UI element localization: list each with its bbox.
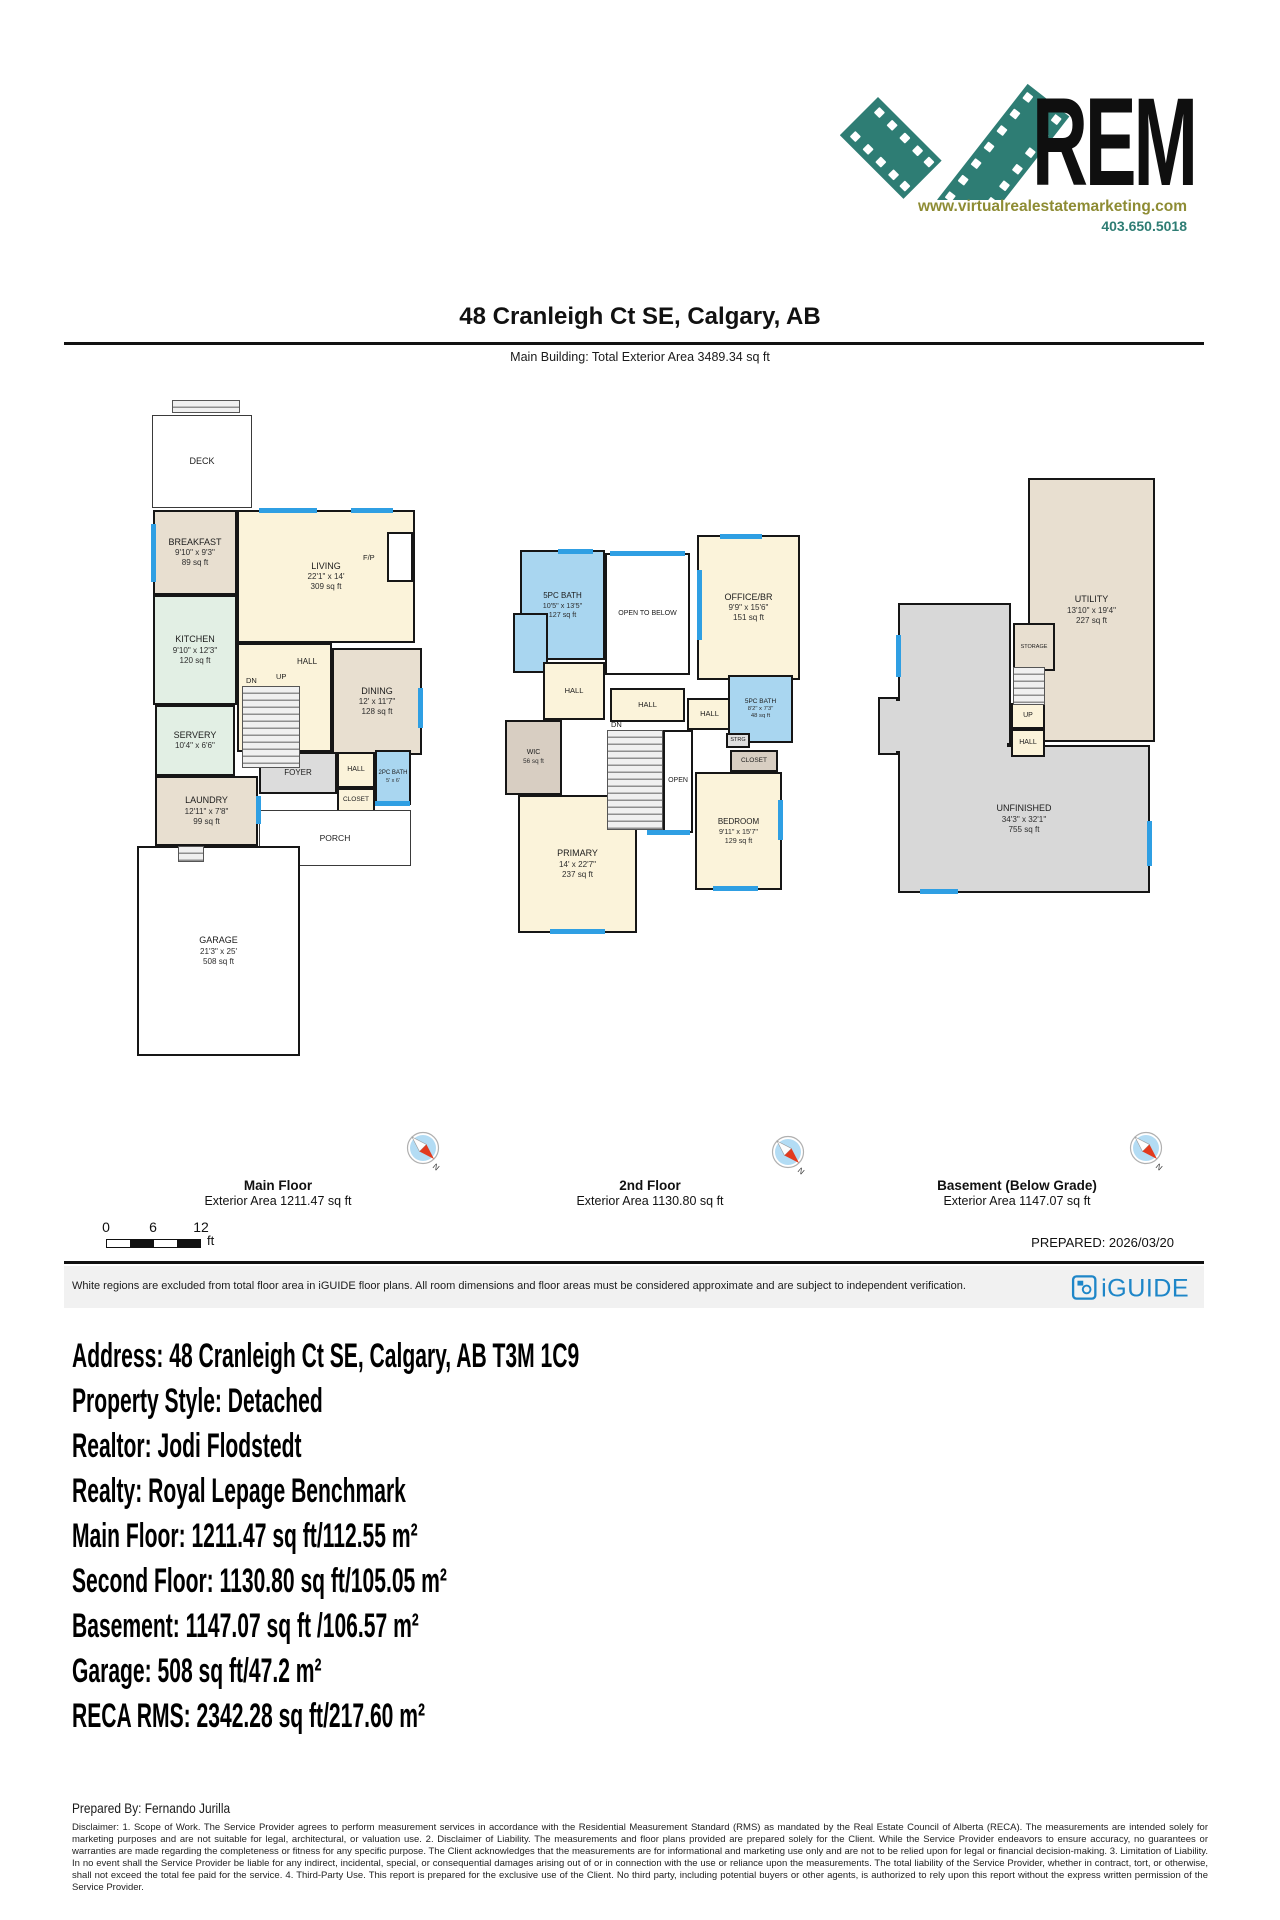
detail-line: Realtor: Jodi Flodstedt: [72, 1424, 579, 1469]
room-area: [898, 603, 1011, 745]
prepared-date: PREPARED: 2026/03/20: [0, 1235, 1174, 1250]
page-subtitle: Main Building: Total Exterior Area 3489.…: [0, 350, 1280, 364]
room-deck: DECK: [152, 415, 252, 508]
detail-line: Main Floor: 1211.47 sq ft/112.55 m²: [72, 1514, 579, 1559]
room-label: HALL: [297, 657, 317, 667]
room-label: UTILITY13'10" x 19'4"227 sq ft: [1067, 594, 1116, 625]
brand-phone: 403.650.5018: [1101, 218, 1187, 234]
page-title: 48 Cranleigh Ct SE, Calgary, AB: [0, 303, 1280, 331]
room-mark-f-p: F/P: [363, 553, 375, 562]
room-breakfast: BREAKFAST9'10" x 9'3"89 sq ft: [153, 510, 237, 595]
room-label: OPEN: [668, 777, 688, 786]
floor-name: Basement (Below Grade): [867, 1178, 1167, 1193]
prepared-by: Prepared By: Fernando Jurilla: [72, 1800, 230, 1816]
room-2pc-bath: 2PC BATH5' x 6': [375, 750, 411, 805]
brand-wordmark: REM: [1032, 73, 1195, 200]
property-details: Address: 48 Cranleigh Ct SE, Calgary, AB…: [72, 1334, 890, 1739]
legal-disclaimer: Disclaimer: 1. Scope of Work. The Servic…: [72, 1822, 1208, 1894]
title-divider: [64, 342, 1204, 345]
detail-line: Property Style: Detached: [72, 1379, 579, 1424]
brand-header: REM www.virtualrealestatemarketing.com 4…: [840, 60, 1205, 295]
window-marker: [1147, 821, 1152, 866]
room-label: OFFICE/BR9'9" x 15'6"151 sq ft: [724, 592, 772, 623]
window-marker: [610, 551, 685, 556]
room-label: DECK: [189, 456, 214, 467]
room-kitchen: KITCHEN9'10" x 12'3"120 sq ft: [153, 595, 237, 705]
room-label: 5PC BATH10'5" x 13'5"127 sq ft: [543, 591, 582, 619]
room-closet: CLOSET: [337, 788, 375, 812]
disclaimer-bar: White regions are excluded from total fl…: [64, 1266, 1204, 1308]
window-marker: [151, 524, 156, 582]
floor-area: Exterior Area 1130.80 sq ft: [500, 1194, 800, 1208]
room-label: STORAGE: [1021, 644, 1048, 651]
window-marker: [375, 801, 410, 806]
stairs: [178, 846, 204, 862]
room-label: FOYER: [284, 768, 312, 778]
room-hall: HALL: [543, 662, 605, 720]
room-label: BEDROOM9'11" x 15'7"129 sq ft: [718, 817, 759, 845]
stairs: [242, 686, 300, 768]
room-hall: HALL: [1011, 729, 1045, 757]
room-label: HALL: [700, 709, 719, 718]
main-floor-label: Main Floor Exterior Area 1211.47 sq ft: [128, 1178, 428, 1208]
window-marker: [256, 796, 261, 824]
room-up: UP: [1011, 703, 1045, 729]
window-marker: [720, 534, 762, 539]
room-area: [387, 532, 413, 582]
room-label: LIVING22'1" x 14'309 sq ft: [307, 561, 344, 592]
detail-line: RECA RMS: 2342.28 sq ft/217.60 m²: [72, 1694, 579, 1739]
brand-website: www.virtualrealestatemarketing.com: [918, 198, 1187, 216]
room-label: LAUNDRY12'11" x 7'8"99 sq ft: [185, 795, 229, 826]
room-hall: HALL: [687, 698, 732, 730]
room-label: CLOSET: [741, 757, 767, 765]
window-marker: [259, 508, 317, 513]
window-marker: [647, 830, 690, 835]
main-floor-plan: DECKBREAKFAST9'10" x 9'3"89 sq ftLIVING2…: [135, 398, 420, 1063]
wall-opening: [901, 741, 1007, 749]
room-label: 2PC BATH5' x 6': [379, 770, 408, 784]
room-closet: CLOSET: [730, 750, 778, 772]
window-marker: [896, 635, 901, 677]
stairs: [607, 730, 663, 830]
window-marker: [558, 549, 593, 554]
detail-line: Second Floor: 1130.80 sq ft/105.05 m²: [72, 1559, 579, 1604]
room-wic: WIC56 sq ft: [505, 720, 562, 795]
room-open-to-below: OPEN TO BELOW: [605, 553, 690, 675]
room-label: STRG: [730, 737, 745, 744]
room-label: HALL: [638, 700, 657, 709]
room-label: SERVERY10'4" x 6'6": [174, 730, 217, 751]
iguide-wordmark: iGUIDE: [1101, 1275, 1189, 1302]
room-label: 5PC BATH8'2" x 7'3"48 sq ft: [745, 698, 776, 721]
vrem-logo: REM: [840, 60, 1205, 200]
room-unfinished: UNFINISHED34'3" x 32'1"755 sq ft: [898, 745, 1150, 893]
detail-line: Garage: 508 sq ft/47.2 m²: [72, 1649, 579, 1694]
compass-icon: N: [766, 1132, 810, 1176]
window-marker: [418, 688, 423, 728]
floor-name: 2nd Floor: [500, 1178, 800, 1193]
window-marker: [920, 889, 958, 894]
svg-text:N: N: [1154, 1162, 1164, 1172]
window-marker: [713, 886, 758, 891]
scale-tick: 6: [149, 1219, 157, 1235]
detail-line: Realty: Royal Lepage Benchmark: [72, 1469, 579, 1514]
room-label: GARAGE21'3" x 25'508 sq ft: [199, 935, 238, 966]
room-bedroom: BEDROOM9'11" x 15'7"129 sq ft: [695, 772, 782, 890]
room-label: CLOSET: [343, 796, 369, 804]
window-marker: [778, 800, 783, 840]
room-strg: STRG: [726, 733, 750, 748]
scale-tick: 0: [102, 1219, 110, 1235]
room-label: HALL: [347, 766, 365, 775]
floor-plan-disclaimer: White regions are excluded from total fl…: [72, 1280, 966, 1292]
room-utility: UTILITY13'10" x 19'4"227 sq ft: [1028, 478, 1155, 742]
room-label: UP: [1023, 712, 1033, 721]
window-marker: [697, 570, 702, 640]
floor-plan-report-page: REM www.virtualrealestatemarketing.com 4…: [0, 0, 1280, 1920]
basement-floor-plan: UTILITY13'10" x 19'4"227 sq ftUNFINISHED…: [870, 475, 1165, 900]
svg-text:N: N: [431, 1162, 441, 1172]
room-servery: SERVERY10'4" x 6'6": [155, 705, 235, 776]
compass-icon: N: [1124, 1128, 1168, 1172]
stairs: [172, 400, 240, 413]
room-storage: STORAGE: [1013, 623, 1055, 671]
iguide-logo: iGUIDE: [1070, 1273, 1198, 1302]
floor-area: Exterior Area 1147.07 sq ft: [867, 1194, 1167, 1208]
room-label: OPEN TO BELOW: [618, 610, 676, 619]
compass-icon: N: [401, 1128, 445, 1172]
room-laundry: LAUNDRY12'11" x 7'8"99 sq ft: [155, 776, 258, 846]
room-mark-dn: DN: [611, 720, 622, 729]
room-label: UNFINISHED34'3" x 32'1"755 sq ft: [996, 803, 1051, 834]
film-strip-left-icon: [840, 97, 942, 199]
detail-line: Basement: 1147.07 sq ft /106.57 m²: [72, 1604, 579, 1649]
room-label: PRIMARY14' x 22'7"237 sq ft: [557, 848, 598, 879]
room-label: HALL: [1019, 739, 1037, 748]
basement-floor-label: Basement (Below Grade) Exterior Area 114…: [867, 1178, 1167, 1208]
second-floor-plan: 5PC BATH10'5" x 13'5"127 sq ftOPEN TO BE…: [425, 530, 803, 940]
room-mark-dn: DN: [246, 676, 257, 685]
room-office-br: OFFICE/BR9'9" x 15'6"151 sq ft: [697, 535, 800, 680]
room-open: OPEN: [663, 730, 693, 833]
detail-line: Address: 48 Cranleigh Ct SE, Calgary, AB…: [72, 1334, 579, 1379]
stairs: [1013, 667, 1045, 705]
room-label: BREAKFAST9'10" x 9'3"89 sq ft: [168, 537, 221, 568]
footer-divider: [64, 1261, 1204, 1264]
svg-text:N: N: [796, 1166, 806, 1176]
room-garage: GARAGE21'3" x 25'508 sq ft: [137, 846, 300, 1056]
room-label: DINING12' x 11'7"128 sq ft: [359, 686, 395, 717]
room-label: HALL: [565, 686, 584, 695]
room-label: KITCHEN9'10" x 12'3"120 sq ft: [173, 634, 217, 665]
window-marker: [550, 929, 605, 934]
floor-name: Main Floor: [128, 1178, 428, 1193]
room-label: WIC56 sq ft: [523, 749, 544, 766]
room-label: PORCH: [320, 833, 351, 844]
window-marker: [351, 508, 393, 513]
wall-opening: [895, 701, 903, 751]
room-mark-up: UP: [276, 672, 286, 681]
room-hall: HALL: [337, 752, 375, 788]
floor-area: Exterior Area 1211.47 sq ft: [128, 1194, 428, 1208]
room-dining: DINING12' x 11'7"128 sq ft: [332, 648, 422, 755]
room-hall: HALL: [610, 688, 685, 722]
second-floor-label: 2nd Floor Exterior Area 1130.80 sq ft: [500, 1178, 800, 1208]
